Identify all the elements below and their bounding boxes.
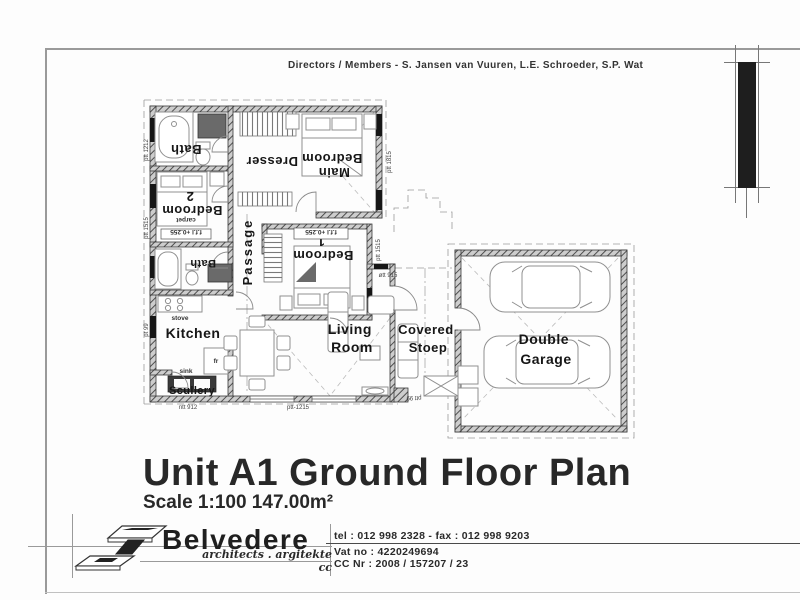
contact-tel-fax: tel : 012 998 2328 - fax : 012 998 9203 bbox=[334, 530, 530, 542]
label-stove: stove bbox=[172, 315, 189, 322]
label-bath2: Bath bbox=[190, 257, 216, 269]
label-ffl-bedroom2: f.f.l +0.255 bbox=[170, 228, 202, 235]
label-sink: sink bbox=[179, 368, 192, 375]
dining-set bbox=[224, 316, 290, 390]
plan-title: Unit A1 Ground Floor Plan bbox=[143, 452, 631, 495]
dim-living-top: øtt 915 bbox=[379, 273, 398, 279]
dim-bottom-mid: ptt-1215 bbox=[287, 405, 310, 411]
dim-bottom-left: ntt 912 bbox=[179, 405, 198, 411]
label-passage: Passage bbox=[240, 219, 255, 286]
label-carpet: carpet bbox=[175, 216, 195, 223]
dim-left-bottom: pt 99 bbox=[144, 323, 150, 337]
brand-tagline: architects . argitekte cc bbox=[198, 548, 332, 574]
contact-cc-nr: CC Nr : 2008 / 157207 / 23 bbox=[334, 558, 468, 570]
braai-box bbox=[424, 376, 458, 396]
kitchen-fixtures bbox=[158, 296, 228, 392]
label-kitchen: Kitchen bbox=[166, 325, 221, 341]
dim-wing-right: ptt 1815 bbox=[387, 150, 393, 172]
contact-vat: Vat no : 4220249694 bbox=[334, 546, 439, 558]
floor-plan-drawing: Bath Dresser Main Bedroom Bedroom 2 Bedr… bbox=[0, 0, 800, 600]
dim-bedroom1-right: ptt 1515 bbox=[376, 238, 382, 260]
label-dresser: Dresser bbox=[246, 154, 298, 169]
plan-scale: Scale 1:100 147.00m² bbox=[143, 492, 333, 514]
dim-left-top: ptt 1212 bbox=[144, 138, 150, 160]
dim-stoep-bottom: ptt 99 bbox=[406, 394, 422, 400]
label-scullery: Scullery bbox=[169, 385, 215, 397]
label-bath1: Bath bbox=[171, 142, 202, 157]
footer-line-contact bbox=[326, 543, 800, 544]
scanned-floor-plan-page: Directors / Members - S. Jansen van Vuur… bbox=[0, 0, 800, 600]
label-ffl-bedroom1: f.f.l +0.255 bbox=[305, 228, 337, 235]
label-fridge: fr bbox=[214, 358, 219, 365]
dim-left-mid: ptt 1515 bbox=[144, 216, 150, 238]
